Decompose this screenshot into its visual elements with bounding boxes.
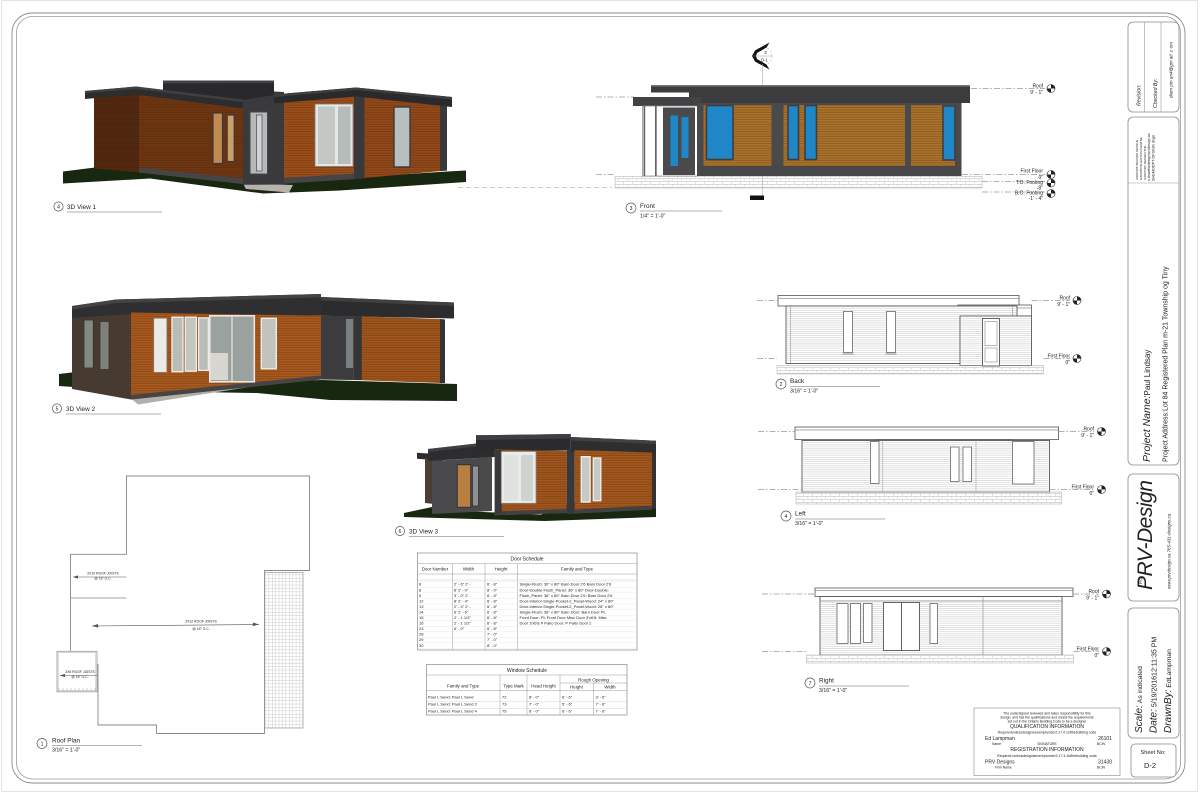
svg-text:8' - 0": 8' - 0" xyxy=(529,695,540,700)
svg-text:Right: Right xyxy=(819,678,834,685)
svg-text:Door-Interior-Single-Pocket-2_: Door-Interior-Single-Pocket-2_Panel-Wood… xyxy=(520,598,615,603)
svg-text:Name: Name xyxy=(992,742,1001,746)
svg-text:2: 2 xyxy=(780,382,783,388)
svg-text:6' 2' - 6": 6' 2' - 6" xyxy=(454,610,469,615)
svg-text:Flush_Panel: 36" x 80" Barn Do: Flush_Panel: 36" x 80" Barn Door 2'6: Ba… xyxy=(520,593,614,598)
svg-text:Paul L Send: Paul L Send: Paul L Send: Paul L Send xyxy=(428,695,474,700)
svg-text:9' - 1": 9' - 1" xyxy=(1057,302,1070,308)
svg-text:QUALIFICATION INFORMATION: QUALIFICATION INFORMATION xyxy=(1010,724,1084,730)
svg-text:Width: Width xyxy=(463,567,475,572)
svg-text:First Floor: First Floor xyxy=(1048,354,1071,360)
svg-text:3' - 0" 2' -: 3' - 0" 2' - xyxy=(454,593,471,598)
svg-text:30: 30 xyxy=(419,643,424,648)
svg-text:Type Mark: Type Mark xyxy=(503,684,524,689)
svg-text:6' - 8": 6' - 8" xyxy=(487,615,498,620)
svg-text:2' - 4" 2' -: 2' - 4" 2' - xyxy=(454,604,471,609)
svg-text:3: 3 xyxy=(630,206,633,212)
svg-text:BCIN: BCIN xyxy=(1097,742,1106,746)
svg-text:1/4" = 1'-0": 1/4" = 1'-0" xyxy=(640,214,665,220)
svg-text:SIGNATURE: SIGNATURE xyxy=(1037,742,1057,746)
svg-text:Family and Type: Family and Type xyxy=(561,567,594,572)
svg-text:diam pm an4@gm ail .c om: diam pm an4@gm ail .c om xyxy=(1169,42,1174,98)
svg-text:8' - 0": 8' - 0" xyxy=(529,709,540,714)
svg-text:3D View 3: 3D View 3 xyxy=(409,529,438,536)
svg-text:Roof: Roof xyxy=(1032,84,1043,90)
svg-text:2X6 ROOF JOISTS: 2X6 ROOF JOISTS xyxy=(65,670,95,674)
svg-text:6' - 8": 6' - 8" xyxy=(487,582,498,587)
svg-text:9' - 1": 9' - 1" xyxy=(1081,433,1094,439)
svg-text:set out in the Ontario Buildin: set out in the Ontario Building Code to … xyxy=(1008,720,1088,724)
svg-text:6' - 8": 6' - 8" xyxy=(487,621,498,626)
svg-text:15: 15 xyxy=(419,615,424,620)
svg-text:Family and Type: Family and Type xyxy=(447,684,480,689)
svg-text:6' - 6": 6' - 6" xyxy=(562,709,573,714)
svg-text:8' - 0": 8' - 0" xyxy=(487,587,498,592)
svg-text:7: 7 xyxy=(809,681,812,687)
svg-text:First Floor: First Floor xyxy=(1072,485,1095,491)
svg-text:2X12 ROOF JOISTS: 2X12 ROOF JOISTS xyxy=(185,620,217,624)
svg-text:3/16" = 1'-0": 3/16" = 1'-0" xyxy=(819,688,847,694)
svg-text:First Floor: First Floor xyxy=(1021,169,1044,175)
svg-text:REGISTRATION INFORMATION: REGISTRATION INFORMATION xyxy=(1010,747,1084,753)
svg-text:7' - 6": 7' - 6" xyxy=(596,709,607,714)
svg-text:Front: Front xyxy=(640,203,655,210)
svg-text:8' 2' - 0": 8' 2' - 0" xyxy=(454,587,469,592)
svg-text:Back: Back xyxy=(790,378,805,385)
svg-text:D-1: D-1 xyxy=(761,58,768,63)
svg-text:3/16" = 1'-0": 3/16" = 1'-0" xyxy=(795,521,823,527)
svg-text:Height: Height xyxy=(570,685,583,690)
svg-text:Height: Height xyxy=(495,567,508,572)
svg-text:7' - 0": 7' - 0" xyxy=(487,632,498,637)
svg-text:First Floor: First Floor xyxy=(1077,647,1100,653)
svg-text:Revision:: Revision: xyxy=(1137,84,1143,106)
svg-text:www.prvdesign.ca 765-431-desi: www.prvdesign.ca 765-431-designs.ca xyxy=(1167,513,1172,589)
svg-text:-1' - 4": -1' - 4" xyxy=(1029,196,1044,202)
svg-text:Roof: Roof xyxy=(1083,427,1094,433)
svg-text:0": 0" xyxy=(1094,653,1099,659)
svg-text:9' - 1": 9' - 1" xyxy=(1086,596,1099,602)
svg-text:6' - 6": 6' - 6" xyxy=(562,695,573,700)
svg-text:D-2: D-2 xyxy=(1144,761,1156,770)
svg-text:6' - 8": 6' - 8" xyxy=(487,604,498,609)
svg-text:6' - 8": 6' - 8" xyxy=(487,610,498,615)
svg-text:8' 2' - 4": 8' 2' - 4" xyxy=(454,598,469,603)
svg-text:BCIN: BCIN xyxy=(1097,766,1106,770)
svg-text:5' - 6": 5' - 6" xyxy=(562,702,573,707)
svg-text:14: 14 xyxy=(419,610,424,615)
svg-text:7' - 0": 7' - 0" xyxy=(487,637,498,642)
svg-text:Paul L Send: Paul L Send 2: Paul L Send: Paul L Send 2 xyxy=(428,702,478,707)
svg-text:Sheet No:: Sheet No: xyxy=(1141,750,1166,756)
svg-text:4: 4 xyxy=(785,514,788,520)
svg-text:s.drawthedesign/prvdesign.ca: s.drawthedesign/prvdesign.ca xyxy=(1147,133,1151,181)
svg-text:3/16" = 1'-0": 3/16" = 1'-0" xyxy=(790,389,818,395)
svg-text:Paul L Send: Paul L Send 4: Paul L Send: Paul L Send 4 xyxy=(428,709,478,714)
svg-text:Required unlessdesignisexemptu: Required unlessdesignisexemptunder2.17.4… xyxy=(997,754,1097,758)
svg-text:6' - 8": 6' - 8" xyxy=(487,626,498,631)
svg-text:Project Name:Paul Lindsay: Project Name:Paul Lindsay xyxy=(1141,350,1153,462)
svg-text:2' - 1 1/2": 2' - 1 1/2" xyxy=(454,615,471,620)
svg-text:0": 0" xyxy=(1065,360,1070,366)
svg-text:29: 29 xyxy=(419,637,424,642)
svg-text:Firm Name: Firm Name xyxy=(995,766,1012,770)
svg-text:SHEMODPT DFSIGN dsgn: SHEMODPT DFSIGN dsgn xyxy=(1152,135,1156,181)
svg-text:16: 16 xyxy=(419,621,424,626)
svg-text:Project Address:Lot 84 Registe: Project Address:Lot 84 Registered Plan m… xyxy=(1163,266,1170,462)
svg-text:75: 75 xyxy=(502,709,507,714)
svg-text:6' - 0": 6' - 0" xyxy=(454,626,465,631)
svg-text:8' - 0": 8' - 0" xyxy=(487,643,498,648)
svg-text:Front Door: PL Front Door Misc: Front Door: PL Front Door Misc Door 3'x6… xyxy=(520,615,607,620)
svg-text:13: 13 xyxy=(419,604,424,609)
svg-text:28: 28 xyxy=(419,632,424,637)
svg-text:Window Schedule: Window Schedule xyxy=(507,668,547,674)
svg-text:Door Schedule: Door Schedule xyxy=(510,557,543,563)
svg-text:23: 23 xyxy=(419,626,424,631)
svg-text:72: 72 xyxy=(502,695,507,700)
svg-text:Left: Left xyxy=(795,511,806,518)
svg-text:4: 4 xyxy=(57,205,60,211)
svg-text:Requiredunlessdesignisexemptun: Requiredunlessdesignisexemptunder2.17.4.… xyxy=(998,731,1097,735)
svg-text:PRV-Design: PRV-Design xyxy=(1134,481,1157,590)
svg-text:3D View 2: 3D View 2 xyxy=(66,406,95,413)
svg-text:Door-Double-Flush_Panel: 36" x: Door-Double-Flush_Panel: 36" x 80" Door-… xyxy=(520,587,610,592)
svg-text:Roof Plan: Roof Plan xyxy=(52,738,81,745)
svg-text:Single-Flush: 36" x 80" Barn D: Single-Flush: 36" x 80" Barn Door: Barn … xyxy=(520,610,607,615)
svg-text:3/16" = 1'-0": 3/16" = 1'-0" xyxy=(52,748,80,754)
svg-text:Checked By:: Checked By: xyxy=(1153,78,1159,108)
svg-text:Head Height: Head Height xyxy=(531,684,556,689)
svg-text:0": 0" xyxy=(1089,491,1094,497)
svg-text:Roof: Roof xyxy=(1059,296,1070,302)
svg-text:2' - 6" 2' -: 2' - 6" 2' - xyxy=(454,582,471,587)
svg-text:6' - 8": 6' - 8" xyxy=(487,593,498,598)
svg-text:2' - 1 1/2": 2' - 1 1/2" xyxy=(454,621,471,626)
svg-text:5: 5 xyxy=(56,407,59,413)
svg-text:@ 16" O.C.: @ 16" O.C. xyxy=(192,627,209,631)
svg-text:Width: Width xyxy=(604,685,616,690)
svg-text:73: 73 xyxy=(502,702,507,707)
svg-text:9' - 1": 9' - 1" xyxy=(1030,90,1043,96)
svg-text:Door 3'x6'8 P Patio Door: P Pa: Door 3'x6'8 P Patio Door: P Patio Door 2 xyxy=(520,621,593,626)
svg-text:Single-Flush: 30" x 80" Barn D: Single-Flush: 30" x 80" Barn Door 2'6 Ba… xyxy=(520,582,613,587)
svg-text:6: 6 xyxy=(399,529,402,535)
svg-text:Door Number: Door Number xyxy=(422,567,449,572)
svg-text:7' - 0": 7' - 0" xyxy=(529,702,540,707)
svg-text:7' - 6": 7' - 6" xyxy=(596,702,607,707)
svg-text:Rough Opening: Rough Opening xyxy=(578,678,609,683)
svg-text:12: 12 xyxy=(419,598,424,603)
svg-text:3' - 6": 3' - 6" xyxy=(596,695,607,700)
svg-text:1: 1 xyxy=(41,742,44,748)
svg-text:3D View 1: 3D View 1 xyxy=(67,204,96,211)
svg-text:6' - 8": 6' - 8" xyxy=(487,598,498,603)
svg-text:Roof: Roof xyxy=(1088,589,1099,595)
svg-text:Door-Interior-Single-Pocket-2_: Door-Interior-Single-Pocket-2_Panel-Wood… xyxy=(520,604,615,609)
svg-text:2X10 ROOF JOISTS: 2X10 ROOF JOISTS xyxy=(87,572,119,576)
